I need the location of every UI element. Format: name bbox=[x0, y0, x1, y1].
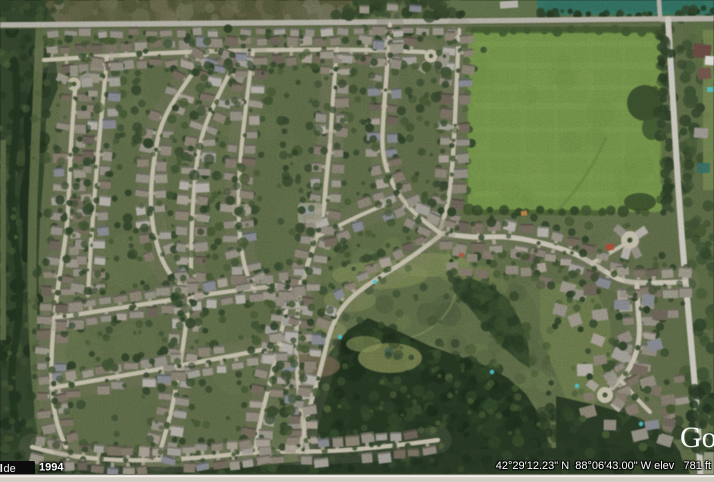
svg-text:42°29′12.23" N 88°06′43.00" W: 42°29′12.23" N 88°06′43.00" W elev 781 f… bbox=[496, 460, 711, 472]
svg-text:1994: 1994 bbox=[39, 462, 64, 474]
svg-text:de: de bbox=[4, 463, 16, 475]
svg-text:Go: Go bbox=[680, 421, 714, 454]
